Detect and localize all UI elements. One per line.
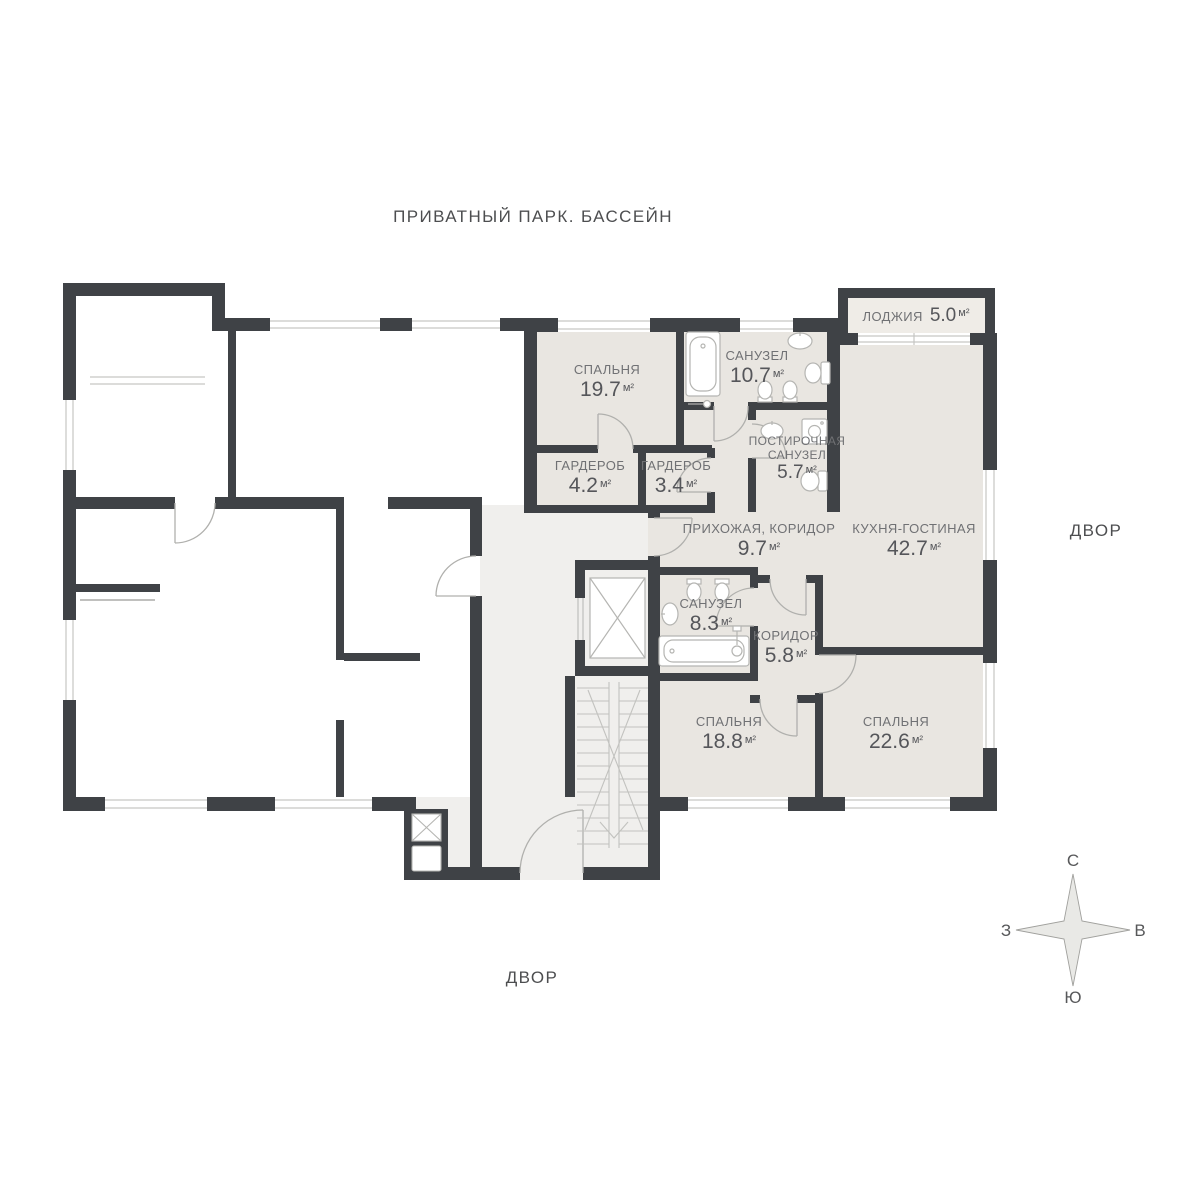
window (105, 797, 207, 811)
site-label-bottom: ДВОР (506, 968, 558, 988)
compass-east: В (1134, 921, 1145, 940)
loggia-floor (847, 297, 987, 335)
floor-plan-page: С Ю З В ПРИВАТНЫЙ ПАРК. БАССЕЙН ДВОР ДВО… (0, 0, 1200, 1200)
apartment-floor-kitchen (823, 332, 990, 522)
toilet-icon (687, 579, 701, 601)
window (740, 318, 793, 332)
door (175, 503, 215, 543)
site-label-top: ПРИВАТНЫЙ ПАРК. БАССЕЙН (393, 207, 673, 227)
window (63, 400, 76, 470)
compass-west: З (1001, 921, 1011, 940)
window (90, 377, 205, 384)
toilet-icon (758, 381, 772, 402)
window (412, 318, 500, 331)
toilet-icon (715, 579, 729, 601)
window (275, 797, 372, 811)
window (270, 318, 380, 331)
toilet-icon (805, 362, 830, 384)
window (858, 333, 970, 345)
compass-north: С (1067, 851, 1079, 870)
window (983, 470, 997, 560)
door (436, 556, 476, 596)
compass-star (1016, 874, 1130, 986)
compass-south: Ю (1064, 988, 1081, 1007)
bathtub-icon (686, 332, 720, 396)
toilet-icon (801, 471, 827, 491)
window (688, 797, 788, 811)
window (983, 663, 997, 748)
window (63, 620, 76, 700)
compass: С Ю З В (1001, 851, 1146, 1007)
window (845, 797, 950, 811)
washing-machine-icon (802, 419, 827, 444)
bidet-icon (783, 381, 797, 402)
garbage-chute-icon (412, 814, 441, 841)
floor-plan-drawing: С Ю З В (0, 0, 1200, 1200)
shaft-box (412, 846, 441, 871)
window (558, 318, 650, 332)
site-label-right: ДВОР (1070, 521, 1122, 541)
